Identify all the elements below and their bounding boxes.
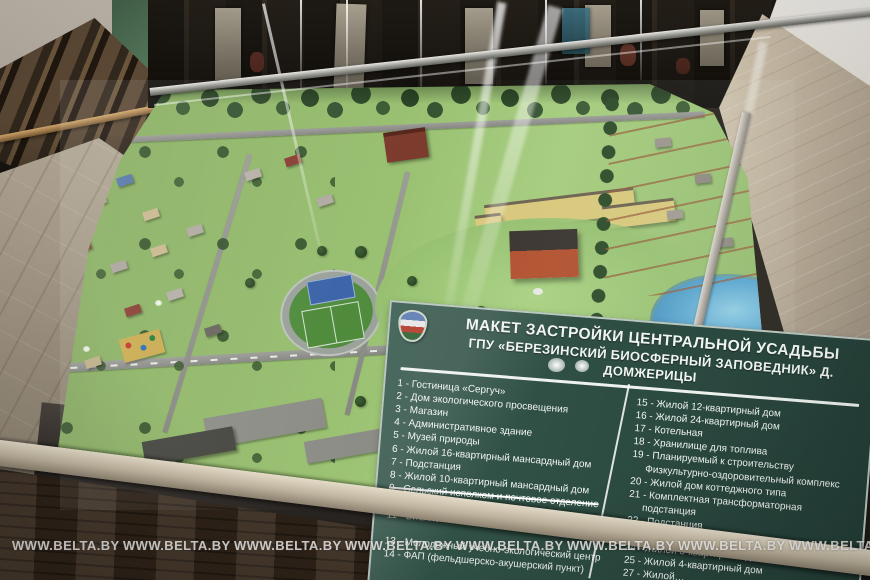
belta-watermark: WWW.BELTA.BY [345, 538, 453, 553]
led-light [346, 0, 348, 88]
belta-watermark: WWW.BELTA.BY [12, 538, 120, 553]
light-glare [155, 300, 162, 306]
model-tree [245, 278, 255, 288]
reserve-crest-icon [397, 309, 428, 343]
light-glare [83, 346, 90, 352]
belta-watermark: WWW.BELTA.BY [789, 538, 870, 553]
museum-photo-scene: МАКЕТ ЗАСТРОЙКИ ЦЕНТРАЛЬНОЙ УСАДЬБЫ ГПУ … [0, 0, 870, 580]
belta-watermark: WWW.BELTA.BY [123, 538, 231, 553]
model-red-building [509, 229, 579, 279]
light-glare [575, 360, 589, 372]
belta-watermark: WWW.BELTA.BY [234, 538, 342, 553]
model-farm-house [667, 209, 684, 220]
model-detail-dot [533, 288, 543, 295]
pitch-midline [330, 307, 337, 343]
model-brick-building [383, 127, 429, 163]
model-tree [355, 396, 366, 407]
model-tree [317, 246, 327, 256]
belta-watermark: WWW.BELTA.BY [567, 538, 675, 553]
belta-watermark: WWW.BELTA.BY [456, 538, 564, 553]
model-farm-house [655, 137, 672, 148]
model-tree [407, 276, 417, 286]
model-stadium [273, 262, 388, 364]
belta-watermark: WWW.BELTA.BY [678, 538, 786, 553]
model-tree [355, 246, 367, 258]
model-farm-house [695, 173, 712, 184]
light-glare [548, 358, 565, 372]
